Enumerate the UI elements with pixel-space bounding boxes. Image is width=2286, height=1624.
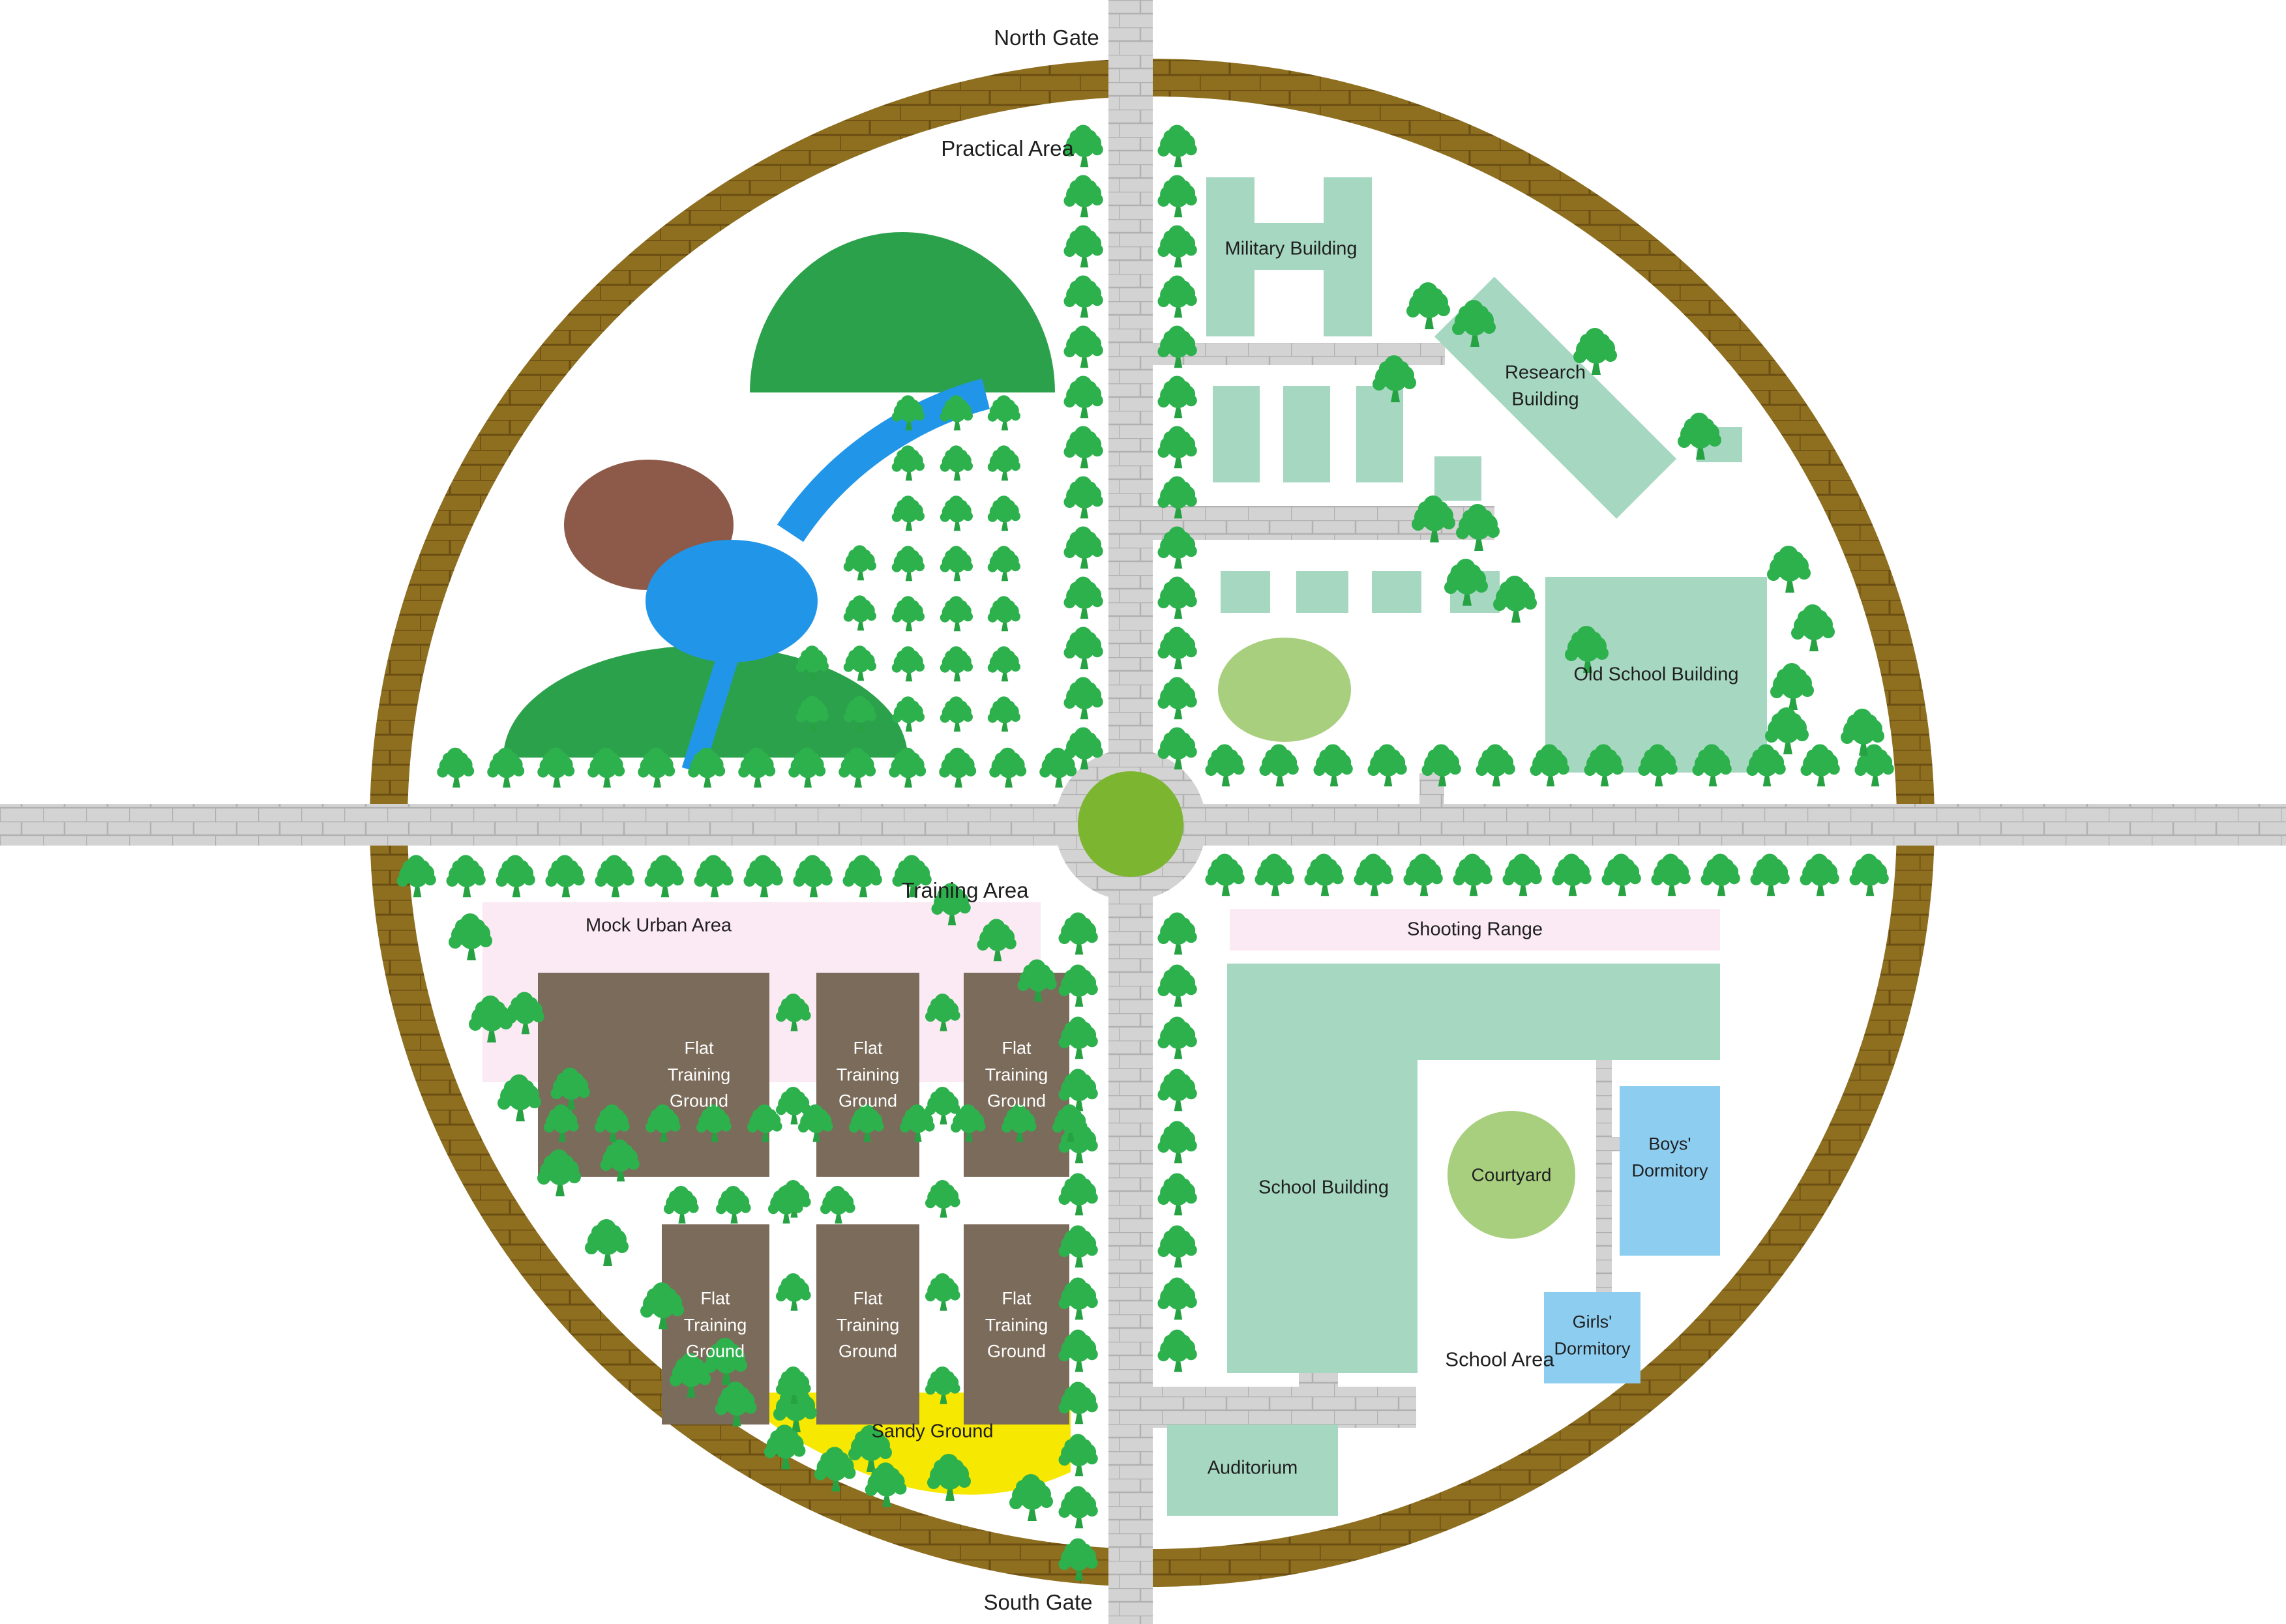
label-mock-urban-area: Mock Urban Area [586,913,732,939]
label-training-area: Training Area [901,876,1028,906]
school-south-road [1153,1387,1416,1428]
annex-block-4 [1450,571,1500,613]
label-courtyard: Courtyard [1472,1162,1552,1187]
label-flat-training-ground-4: Flat Training Ground [684,1285,747,1365]
label-school-building: School Building [1258,1175,1389,1202]
roundabout-green-island [1078,771,1183,877]
old-school-driveway [1419,773,1444,804]
barracks-block-2 [1283,386,1330,482]
campus-map: North Gate Practical Area Military Build… [0,0,2286,1624]
annex-block-2 [1296,571,1348,613]
stream-upper [790,394,986,533]
label-south-gate: South Gate [984,1587,1093,1617]
north-hill [750,232,1055,392]
label-school-area: School Area [1445,1345,1554,1373]
barracks-block-1 [1213,386,1260,482]
label-military-building: Military Building [1225,236,1357,263]
school-driveway [1299,1370,1338,1389]
label-auditorium: Auditorium [1208,1455,1298,1482]
label-shooting-range: Shooting Range [1407,917,1543,943]
small-building-a [1434,456,1481,501]
map-background [0,0,2286,1624]
annex-block-1 [1221,571,1270,613]
label-north-gate: North Gate [994,23,1099,53]
flat-training-ground-1 [538,973,769,1177]
label-flat-training-ground-6: Flat Training Ground [985,1285,1048,1365]
label-boys-dormitory: Boys' Dormitory [1631,1131,1708,1184]
label-flat-training-ground-3: Flat Training Ground [985,1035,1048,1114]
military-path [1153,343,1445,365]
lawn-oval [1218,638,1351,742]
label-flat-training-ground-1: Flat Training Ground [668,1035,731,1114]
label-girls-dormitory: Girls' Dormitory [1554,1309,1630,1362]
small-building-b [1697,427,1742,462]
label-flat-training-ground-5: Flat Training Ground [837,1285,900,1365]
pond [646,540,818,662]
school-building-west-wing [1227,964,1418,1373]
label-research-building: Research Building [1505,359,1586,412]
label-sandy-ground: Sandy Ground [871,1419,993,1445]
label-flat-training-ground-2: Flat Training Ground [837,1035,900,1114]
barracks-block-3 [1356,386,1403,482]
label-practical-area: Practical Area [941,134,1074,164]
label-old-school-building: Old School Building [1573,662,1738,688]
barracks-path [1153,506,1494,540]
dormitory-path [1596,1060,1612,1292]
annex-block-3 [1372,571,1421,613]
school-building-north-wing [1418,964,1720,1060]
